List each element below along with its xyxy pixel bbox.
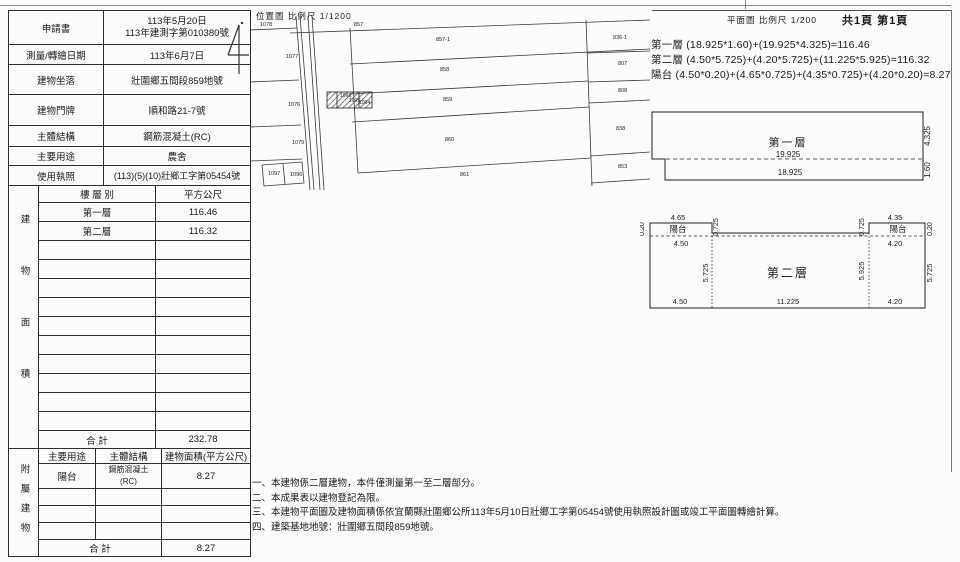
- formula-second-floor: 第二層 (4.50*5.725)+(4.20*5.725)+(11.225*5.…: [651, 53, 951, 68]
- field-value: 農舍: [104, 147, 251, 166]
- parcel-label: 807: [618, 61, 627, 67]
- field-label: 建物坐落: [9, 65, 104, 95]
- parcel-label: 1079: [292, 140, 304, 146]
- parcel-label: 808: [618, 88, 627, 94]
- survey-result-sheet: 申請書 113年5月20日 113年建測字第010380號 測量/轉繪日期 11…: [0, 0, 960, 562]
- parcel-label: 1096: [290, 172, 302, 178]
- field-label: 建物門牌: [9, 95, 104, 126]
- empty-cell: [156, 412, 251, 431]
- floor-plan-title: 平面圖 比例尺 1/200: [727, 14, 817, 26]
- annex-total-label: 合 計: [39, 540, 162, 557]
- dim-b-center: 11.225: [777, 297, 799, 306]
- empty-cell: [156, 279, 251, 298]
- dim-lb-depth: 0.725: [713, 218, 720, 236]
- annex-building-table: 附屬建物 主要用途 主體結構 建物面積(平方公尺) 陽台 鋼筋混凝土 (RC) …: [8, 448, 251, 557]
- empty-cell: [156, 317, 251, 336]
- parcel-label: 860: [445, 137, 454, 143]
- empty-cell: [39, 412, 156, 431]
- parcel-label: 1078: [260, 22, 272, 28]
- application-info-table: 申請書 113年5月20日 113年建測字第010380號 測量/轉繪日期 11…: [8, 10, 251, 186]
- column-header-floor: 樓 層 別: [39, 186, 156, 203]
- parcel-label-subject: 859: [443, 97, 452, 103]
- dim-b-left: 4.50: [673, 297, 688, 306]
- annex-total-value: 8.27: [162, 540, 251, 557]
- dim-b-right: 4.20: [888, 297, 903, 306]
- empty-cell: [39, 374, 156, 393]
- first-floor-label: 第一層: [769, 135, 808, 149]
- building-area-side-label: 建物面積: [9, 186, 39, 449]
- dim-h-left: 5.725: [701, 264, 710, 283]
- empty-cell: [39, 336, 156, 355]
- empty-cell: [162, 506, 251, 523]
- dim-h-right: 5.725: [925, 264, 934, 283]
- empty-cell: [39, 298, 156, 317]
- building-area-table: 建物面積 樓 層 別 平方公尺 第一層 116.46 第二層 116.32 合 …: [8, 185, 251, 449]
- field-value: 鋼筋混凝土(RC): [104, 126, 251, 147]
- dim-h-center: 5.925: [857, 262, 866, 281]
- north-arrow-icon: [224, 20, 252, 78]
- field-value: (113)(5)(10)壯鄉工字第05454號: [104, 166, 251, 186]
- parcel-label: 858: [440, 67, 449, 73]
- dim-lb-bottom: 4.50: [674, 239, 689, 248]
- footnotes: 一、本建物係二層建物，本件僅測量第一至二層部分。 二、本成果表以建物登記為限。 …: [252, 477, 784, 535]
- annex-side-label: 附屬建物: [9, 449, 39, 557]
- empty-cell: [39, 279, 156, 298]
- balcony-label-right: 陽台: [889, 224, 906, 234]
- floor-name: 第一層: [39, 203, 156, 222]
- empty-cell: [156, 298, 251, 317]
- field-label: 主要用途: [9, 147, 104, 166]
- top-tick-line: [745, 0, 746, 9]
- dim-rb-top: 4.35: [888, 213, 903, 222]
- empty-cell: [156, 336, 251, 355]
- empty-cell: [39, 393, 156, 412]
- parcel-label: 836-1: [613, 35, 627, 41]
- floor-plans: 第一層 19.925 18.925 4.325 1.60 4.65 0.725 …: [640, 105, 960, 317]
- column-header-structure: 主體結構: [96, 449, 162, 464]
- location-map: 1078 1077 1076 1079 1097 1096 1098 1095 …: [250, 8, 655, 198]
- dim-18925: 18.925: [778, 168, 803, 177]
- parcel-label: 861: [460, 172, 469, 178]
- annex-use: 陽台: [39, 464, 96, 489]
- empty-cell: [39, 260, 156, 279]
- parcel-label: 1077: [286, 54, 298, 60]
- dim-160: 1.60: [923, 162, 932, 178]
- dim-rb-depth: 0.725: [859, 218, 866, 236]
- floor-area: 116.46: [156, 203, 251, 222]
- empty-cell: [96, 523, 162, 540]
- annex-structure: 鋼筋混凝土 (RC): [96, 464, 162, 489]
- parcel-label: 838: [616, 126, 625, 132]
- field-label: 測量/轉繪日期: [9, 45, 104, 65]
- note-3: 三、本建物平面圖及建物面積係依宜蘭縣壯圍鄉公所113年5月10日壯鄉工字第054…: [252, 506, 784, 520]
- empty-cell: [39, 523, 96, 540]
- empty-cell: [96, 506, 162, 523]
- empty-cell: [162, 489, 251, 506]
- column-header-sqm: 平方公尺: [156, 186, 251, 203]
- balcony-label-left: 陽台: [669, 224, 686, 234]
- field-value: 順和路21-7號: [104, 95, 251, 126]
- second-floor-label: 第二層: [767, 266, 809, 280]
- parcel-label: 1076: [288, 102, 300, 108]
- empty-cell: [156, 355, 251, 374]
- parcel-label: 857: [354, 22, 363, 28]
- column-header-use: 主要用途: [39, 449, 96, 464]
- note-4: 四、建築基地地號：壯圍鄉五間段859地號。: [252, 521, 784, 535]
- dim-19925: 19.925: [776, 150, 801, 159]
- parcel-label: 857-1: [436, 37, 450, 43]
- column-header-area: 建物面積(平方公尺): [162, 449, 251, 464]
- dim-r-edge: 0.20: [927, 222, 934, 236]
- annex-area: 8.27: [162, 464, 251, 489]
- empty-cell: [96, 489, 162, 506]
- empty-cell: [156, 260, 251, 279]
- area-total-value: 232.78: [156, 431, 251, 449]
- floor-area: 116.32: [156, 222, 251, 241]
- field-label: 申請書: [9, 11, 104, 45]
- formula-balcony: 陽台 (4.50*0.20)+(4.65*0.725)+(4.35*0.725)…: [651, 68, 951, 83]
- parcel-label: 853: [618, 164, 627, 170]
- note-1: 一、本建物係二層建物，本件僅測量第一至二層部分。: [252, 477, 784, 491]
- note-2: 二、本成果表以建物登記為限。: [252, 492, 784, 506]
- parcel-label: 1094: [359, 100, 370, 106]
- floor-name: 第二層: [39, 222, 156, 241]
- empty-cell: [39, 506, 96, 523]
- field-label: 主體結構: [9, 126, 104, 147]
- field-label: 使用執照: [9, 166, 104, 186]
- empty-cell: [39, 317, 156, 336]
- empty-cell: [156, 393, 251, 412]
- empty-cell: [39, 355, 156, 374]
- dim-4325: 4.325: [923, 125, 932, 146]
- page-top-border: [0, 5, 951, 6]
- dim-rb-bottom: 4.20: [888, 239, 903, 248]
- area-total-label: 合 計: [39, 431, 156, 449]
- empty-cell: [39, 489, 96, 506]
- parcel-label: 1097: [268, 171, 280, 177]
- empty-cell: [39, 241, 156, 260]
- empty-cell: [156, 374, 251, 393]
- empty-cell: [162, 523, 251, 540]
- plan-panel-top-border: [652, 10, 951, 11]
- area-formulas: 第一層 (18.925*1.60)+(19.925*4.325)=116.46 …: [651, 38, 951, 83]
- dim-lb-top: 4.65: [671, 213, 686, 222]
- formula-first-floor: 第一層 (18.925*1.60)+(19.925*4.325)=116.46: [651, 38, 951, 53]
- page-count-label: 共1頁 第1頁: [842, 12, 908, 28]
- empty-cell: [156, 241, 251, 260]
- dim-l-edge: 0.20: [640, 222, 646, 236]
